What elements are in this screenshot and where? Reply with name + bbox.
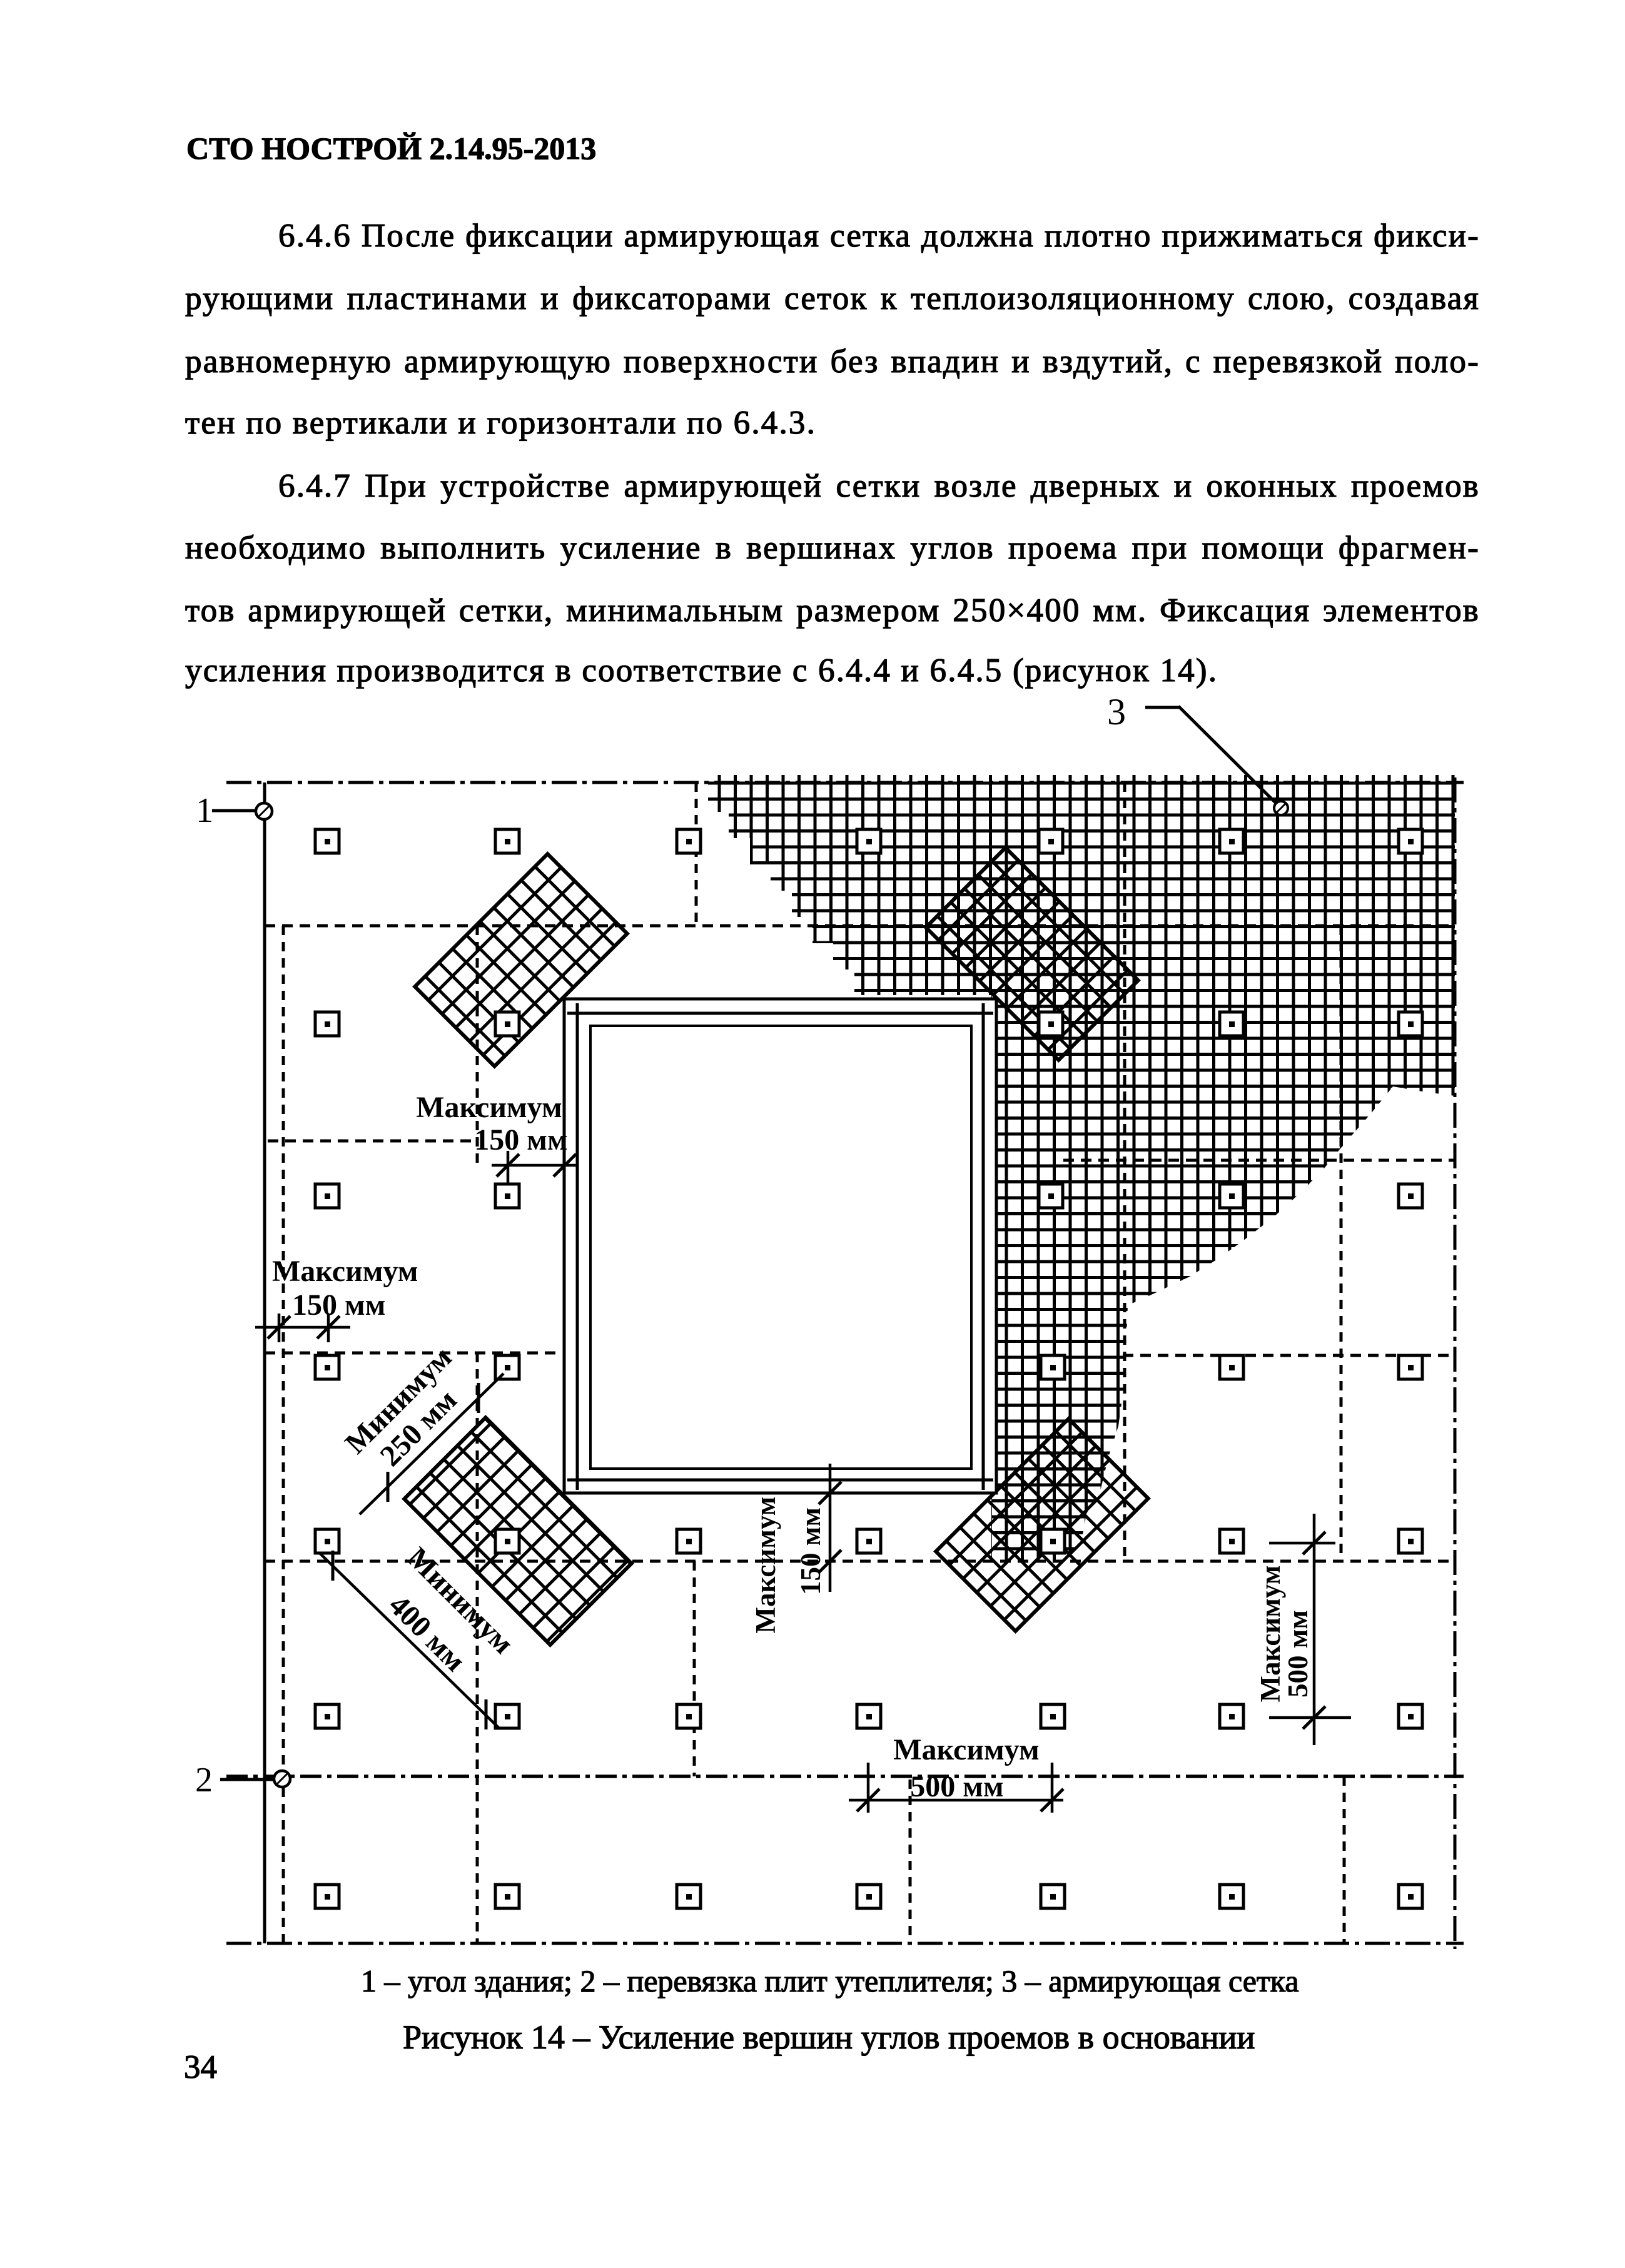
svg-text:1: 1	[196, 791, 213, 830]
svg-text:2: 2	[195, 1761, 213, 1800]
svg-text:Максимум: Максимум	[893, 1733, 1039, 1766]
svg-text:Максимум: Максимум	[416, 1091, 562, 1124]
svg-text:150 мм: 150 мм	[795, 1507, 826, 1595]
svg-text:Максимум: Максимум	[272, 1255, 418, 1288]
svg-text:500 мм: 500 мм	[1282, 1610, 1314, 1698]
svg-text:Максимум: Максимум	[750, 1497, 781, 1634]
svg-text:3: 3	[1107, 691, 1126, 732]
svg-text:500 мм: 500 мм	[910, 1770, 1003, 1803]
svg-text:150 мм: 150 мм	[474, 1123, 567, 1157]
svg-text:Максимум: Максимум	[1255, 1566, 1286, 1703]
